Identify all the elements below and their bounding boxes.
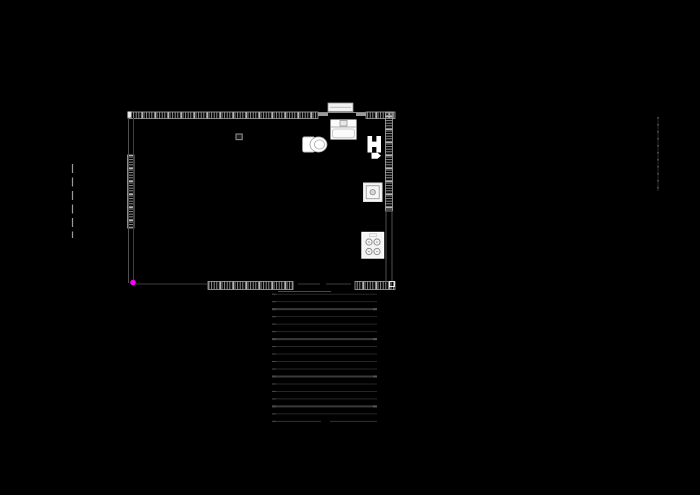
radiator-h-block: [368, 136, 382, 153]
stove-four-burners-shape: [376, 251, 378, 253]
stove-four-burners-shape: [376, 241, 378, 243]
radiator-h-block-shape: [371, 142, 378, 147]
stairs: [272, 294, 377, 421]
floor-drain-shape: [370, 190, 375, 195]
corner-marker-top-left: [128, 112, 132, 118]
wall-bottom-mid: [208, 282, 293, 290]
toilet: [303, 137, 328, 152]
wall-top-left: [128, 112, 318, 119]
stove-four-burners-shape: [368, 241, 370, 243]
stove-four-burners: [362, 233, 384, 259]
ceiling-light-symbol: [236, 134, 242, 140]
snap-marker: [130, 280, 136, 286]
flow-direction-arrow-shape: [372, 153, 382, 159]
door-leaf: [328, 103, 353, 112]
flow-direction-arrow: [372, 153, 382, 159]
cad-drawing-area[interactable]: [0, 0, 700, 495]
corner-marker-top-left-shape: [128, 112, 132, 118]
stove-four-burners-shape: [368, 251, 370, 253]
floor-plan: [0, 0, 700, 495]
wall-right-upper: [386, 112, 393, 211]
ceiling-light-symbol-shape: [236, 134, 242, 140]
sink: [331, 120, 357, 140]
sink-shape: [340, 121, 347, 127]
floor-drain: [364, 183, 383, 202]
